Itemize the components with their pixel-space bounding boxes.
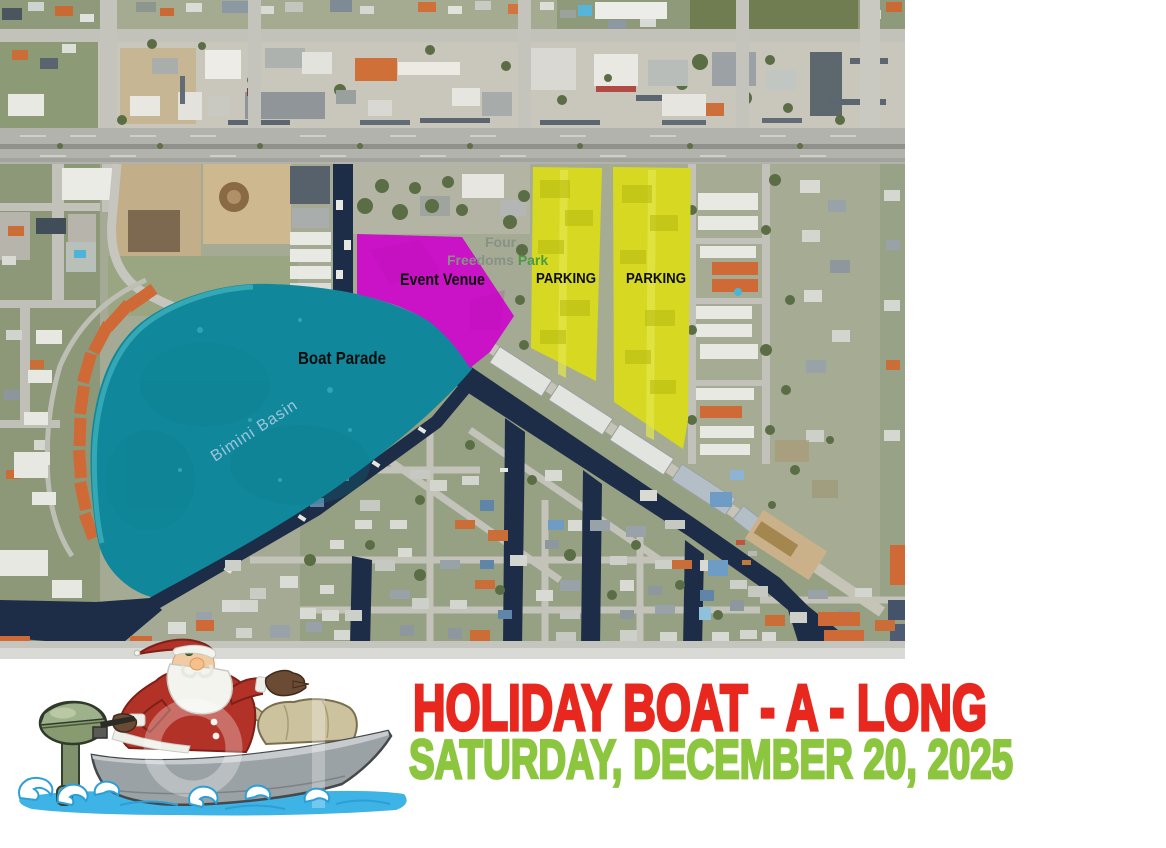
svg-text:PARKING: PARKING — [536, 271, 596, 287]
svg-text:PARKING: PARKING — [626, 271, 686, 287]
svg-text:Four: Four — [485, 234, 517, 250]
svg-text:SATURDAY, DECEMBER 20, 2025: SATURDAY, DECEMBER 20, 2025 — [409, 728, 1013, 790]
svg-text:Boat Parade: Boat Parade — [298, 348, 386, 368]
svg-text:Freedoms Park: Freedoms Park — [447, 252, 548, 268]
svg-text:Event Venue: Event Venue — [400, 270, 485, 289]
